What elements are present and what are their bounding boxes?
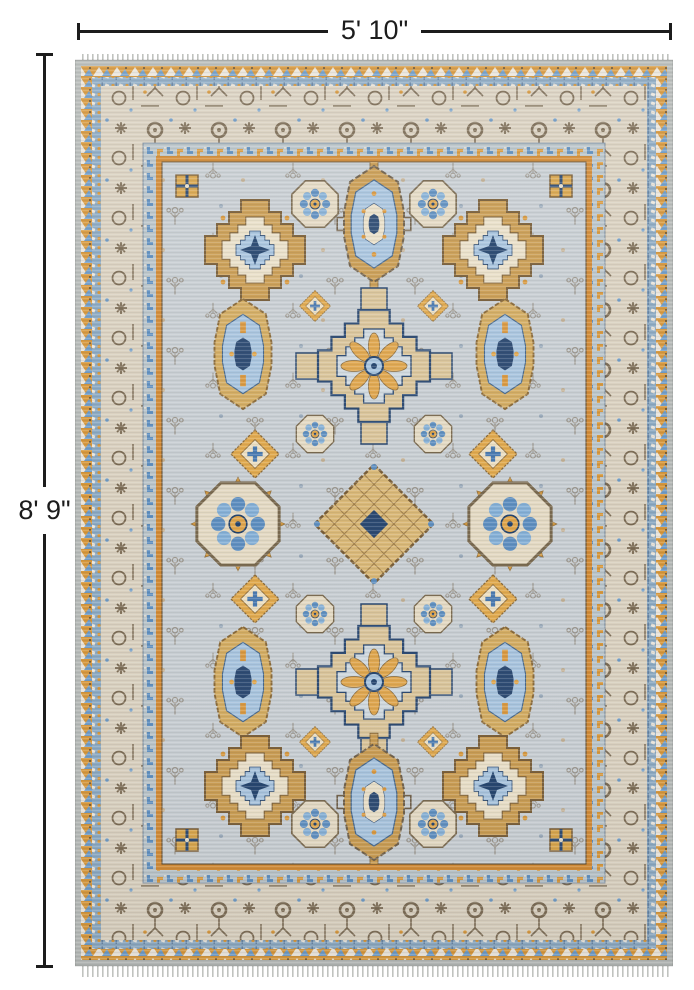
width-dimension-line-left [80,30,328,33]
height-dimension: 8' 9" [36,53,53,968]
width-dimension-label: 5' 10" [328,17,421,44]
product-dimension-image: 5' 10" 8' 9" [0,0,694,990]
width-dimension: 5' 10" [77,23,672,40]
height-dimension-label: 8' 9" [18,497,70,524]
rug-fringe-bottom [79,965,669,977]
height-dimension-line-top [43,56,46,487]
height-dimension-line-bottom [43,534,46,965]
rug-lighting-overlay [75,60,673,966]
width-dimension-cap-right [669,23,672,40]
rug-image [75,54,673,978]
width-dimension-line-right [421,30,669,33]
height-dimension-cap-bottom [36,965,53,968]
